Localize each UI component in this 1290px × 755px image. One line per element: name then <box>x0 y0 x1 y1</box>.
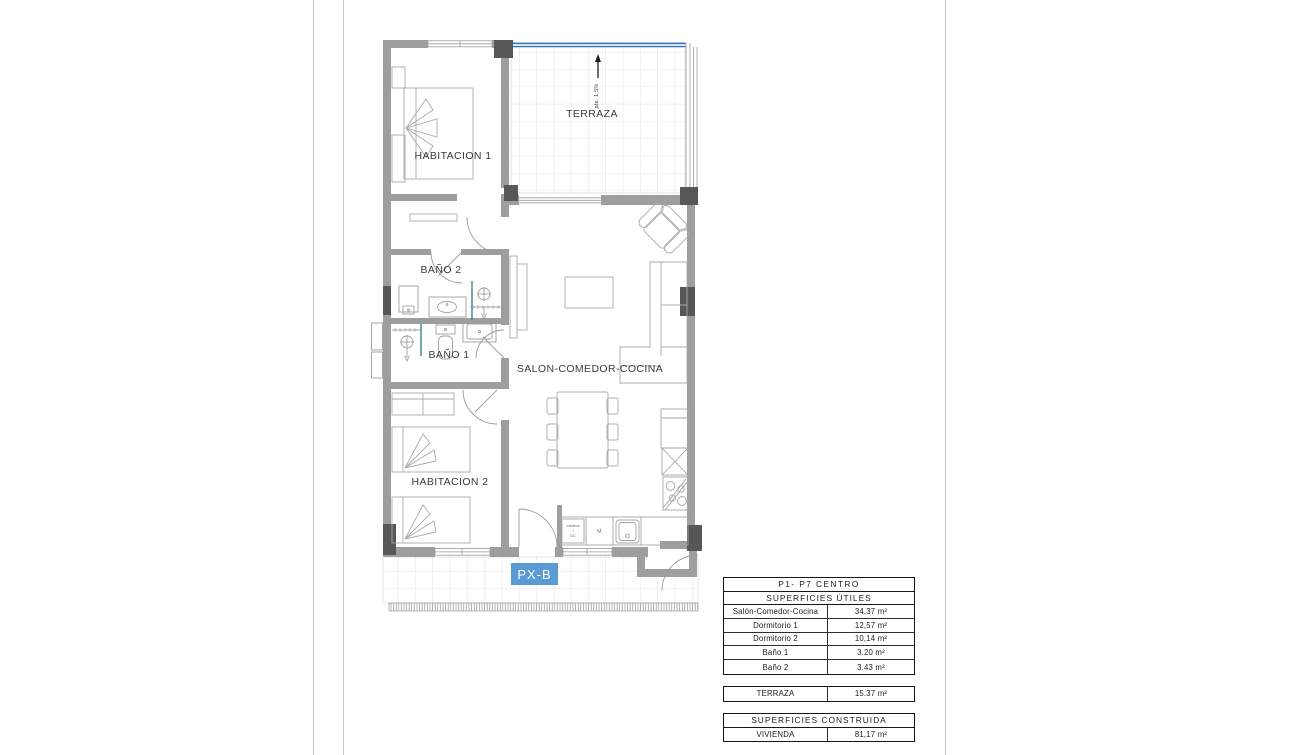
washbasin <box>429 297 466 317</box>
doors <box>431 217 698 591</box>
toilet <box>399 286 418 314</box>
room-label-bano1: BAÑO 1 <box>429 348 470 361</box>
plan-code-highlight: PX-B <box>511 563 558 585</box>
surface-table-utiles: P1- P7 CENTRO SUPERFICIES ÚTILES Salón-C… <box>723 577 915 675</box>
window-habitacion2 <box>435 549 490 556</box>
washbasin <box>463 321 496 342</box>
room-label-habitacion1: HABITACION 1 <box>415 150 492 162</box>
slope-label: pte. 1,5% <box>594 83 600 108</box>
shower <box>392 324 421 361</box>
hall-shelf <box>410 214 457 221</box>
table-subtitle: SUPERFICIES ÚTILES <box>724 592 914 606</box>
bed-habitacion1 <box>392 67 473 182</box>
room-label-habitacion2: HABITACION 2 <box>412 476 489 488</box>
sheet-frame-line-left2 <box>343 0 344 755</box>
table-cell-value: 3.20 m² <box>828 646 914 659</box>
table-row: Salón-Comedor-Cocina 34,37 m² <box>724 605 914 619</box>
coffee-table <box>565 277 613 308</box>
dining-table <box>547 392 618 468</box>
room-label-terraza: TERRAZA <box>566 108 618 120</box>
surface-table-construida: SUPERFICIES CONSTRUIDA VIVIENDA 81,17 m² <box>723 713 915 742</box>
drawing-sheet: caldera + DC M. <box>0 0 1290 755</box>
hob <box>663 477 688 510</box>
table-cell-value: 12,57 m² <box>828 619 914 632</box>
table-cell-label: Dormitorio 1 <box>724 619 828 632</box>
table-cell-label: Salón-Comedor-Cocina <box>724 605 828 618</box>
table-row: TERRAZA 15.37 m² <box>724 687 914 701</box>
shower <box>470 281 503 320</box>
table-cell-value: 34,37 m² <box>828 605 914 618</box>
table-cell-label: Baño 1 <box>724 646 828 659</box>
bed2-habitacion2 <box>392 497 470 543</box>
floor-plan: caldera + DC M. <box>370 30 710 625</box>
table-cell-label: TERRAZA <box>724 687 828 701</box>
table-cell-label: VIVIENDA <box>724 728 828 742</box>
media-unit <box>510 256 527 338</box>
table-cell-value: 81,17 m² <box>828 728 914 742</box>
table-cell-value: 3.43 m² <box>828 660 914 674</box>
kitchen-counter <box>560 517 688 545</box>
kitchen-appliance-labels: caldera + DC M. <box>566 523 602 538</box>
fridge <box>661 409 688 475</box>
table-row: Dormitorio 1 12,57 m² <box>724 619 914 633</box>
armchair <box>636 198 693 255</box>
exterior-shaft <box>372 323 383 378</box>
table-row: Dormitorio 2 10,14 m² <box>724 633 914 647</box>
window-kitchen <box>563 549 612 556</box>
svg-text:M.: M. <box>597 529 603 535</box>
table-cell-label: Dormitorio 2 <box>724 633 828 646</box>
table-row: Baño 2 3.43 m² <box>724 660 914 674</box>
entrance-door <box>519 509 557 547</box>
door-hall-salon <box>467 217 504 254</box>
svg-text:DC: DC <box>570 533 576 538</box>
table-subtitle-text: SUPERFICIES ÚTILES <box>766 593 872 603</box>
table-cell-value: 10,14 m² <box>828 633 914 646</box>
table-title: P1- P7 CENTRO <box>724 578 914 592</box>
terrace-sliding-door <box>519 198 601 203</box>
room-label-bano2: BAÑO 2 <box>421 263 462 276</box>
surface-table-terraza: TERRAZA 15.37 m² <box>723 686 915 702</box>
table-title-text: SUPERFICIES CONSTRUIDA <box>751 715 887 725</box>
table-cell-label: Baño 2 <box>724 660 828 674</box>
sheet-frame-line-right <box>945 0 946 755</box>
bathroom2-fixtures <box>399 281 503 320</box>
table-row: Baño 1 3.20 m² <box>724 646 914 660</box>
wardrobe-habitacion2 <box>392 393 454 415</box>
sheet-frame-line-left1 <box>313 0 314 755</box>
sink <box>616 520 639 543</box>
table-title-text: P1- P7 CENTRO <box>778 579 860 589</box>
window-habitacion1 <box>428 41 492 47</box>
table-title: SUPERFICIES CONSTRUIDA <box>724 714 914 728</box>
bed1-habitacion2 <box>392 427 470 472</box>
room-label-salon: SALON-COMEDOR-COCINA <box>517 363 663 375</box>
table-row: VIVIENDA 81,17 m² <box>724 728 914 742</box>
plan-code-label: PX-B <box>517 567 551 582</box>
porch-interior <box>648 549 689 569</box>
table-cell-value: 15.37 m² <box>828 687 914 701</box>
